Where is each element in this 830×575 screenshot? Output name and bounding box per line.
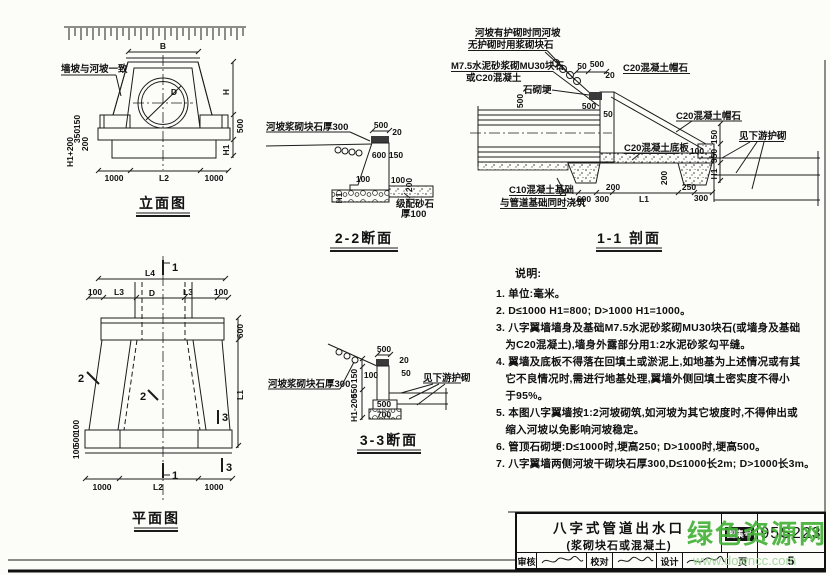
view-title-1-1: 1-1 剖面 bbox=[597, 230, 661, 246]
dim-label: 200 bbox=[659, 171, 669, 185]
dim-label: 600 bbox=[235, 324, 245, 338]
section-1-1-view: 河坡有护砌时同河坡 无护砌时用浆砌块石 M7.5水泥砂浆砌MU30块石 或C20… bbox=[451, 27, 820, 251]
dim-label: 100 bbox=[356, 174, 370, 184]
c20-slab-label: C20混凝土底板 bbox=[624, 142, 689, 154]
dim-label: 500 bbox=[377, 399, 391, 409]
wall-cap bbox=[376, 359, 389, 366]
dim-label: 100 bbox=[88, 287, 102, 297]
view-title-elevation: 立面图 bbox=[139, 195, 187, 211]
mortar-label-line1: M7.5水泥砂浆砌MU30块石 bbox=[451, 60, 564, 72]
note-line: 5. 本图八字翼墙按1:2河坡砌筑,如河坡为其它坡度时,不得伸出或 bbox=[496, 405, 830, 422]
dim-label: 200 bbox=[606, 182, 620, 192]
dim-label: H bbox=[221, 89, 231, 95]
proofreader-signature bbox=[613, 553, 657, 569]
design-label: 设计 bbox=[657, 553, 683, 569]
atlas-number-label: 图集号 bbox=[725, 527, 755, 541]
dim-label: 1000 bbox=[205, 482, 224, 492]
proof-label: 校对 bbox=[587, 553, 613, 569]
bank-note-line2: 无护砌时用浆砌块石 bbox=[467, 39, 554, 51]
view-title-3-3: 3-3断面 bbox=[360, 432, 418, 448]
dim-label: 100 bbox=[214, 287, 228, 297]
signature-scribble bbox=[684, 554, 726, 568]
dim-label: 250 bbox=[682, 182, 696, 192]
notes-heading: 说明: bbox=[515, 266, 830, 283]
review-label: 审核 bbox=[517, 553, 537, 569]
stone-ridge bbox=[589, 92, 602, 100]
dim-label: 300 bbox=[694, 193, 708, 203]
dim-label: L2 bbox=[153, 482, 163, 492]
slope-note-label: 墙坡与河坡一致 bbox=[61, 63, 128, 75]
plan-view: 1 1 L4 100 L3 D L3 100 bbox=[71, 256, 245, 531]
downstream-protection-label: 见下游护砌 bbox=[739, 130, 787, 142]
dim-label: 200 bbox=[80, 137, 90, 151]
dim-label: 100 bbox=[71, 445, 81, 459]
section-marker-3: 3 bbox=[222, 412, 228, 424]
note-line: 缩入河坡以免影响河坡稳定。 bbox=[496, 422, 830, 439]
dim-label: 500 bbox=[582, 101, 596, 111]
signature-scribble bbox=[539, 554, 585, 568]
dim-label: 150 bbox=[349, 369, 359, 383]
note-line: 它不良情况时,需进行地基处理,翼墙外侧回填土密实度不得小 bbox=[496, 371, 830, 388]
note-line: 6. 管顶石砌埂:D≤1000时,埂高250; D>1000时,埂高500。 bbox=[496, 439, 830, 456]
dim-label: 100 bbox=[71, 420, 81, 434]
dim-label: H1 bbox=[221, 144, 231, 155]
slope-masonry-label: 河坡浆砌块石厚300 bbox=[266, 121, 348, 133]
dim-label: 50 bbox=[603, 109, 613, 119]
dim-label: B bbox=[160, 41, 166, 51]
dim-label: 500 bbox=[235, 119, 245, 133]
dim-label: L4 bbox=[145, 268, 155, 278]
dim-label: L2 bbox=[159, 173, 169, 183]
dim-label: H1-200 bbox=[349, 394, 359, 422]
dim-label: 20 bbox=[399, 355, 409, 365]
dim-label: 50 bbox=[577, 61, 587, 71]
dim-label: 300 bbox=[595, 194, 609, 204]
page-label: 页 bbox=[728, 553, 758, 569]
mortar-label-line2: 或C20混凝土 bbox=[466, 72, 522, 84]
dim-label: L1 bbox=[639, 194, 649, 204]
sheet-subtitle: (浆砌块石或混凝土) bbox=[517, 537, 721, 553]
note-line: 3. 八字翼墙墙身及基础M7.5水泥砂浆砌MU30块石(或墙身及基础 bbox=[496, 320, 830, 337]
ground-hatch bbox=[64, 27, 246, 40]
dim-label: 1000 bbox=[205, 173, 224, 183]
section-marker-1: 1 bbox=[172, 262, 178, 274]
dim-label: 500 bbox=[374, 120, 388, 130]
note-line: 2. D≤1000 H1=800; D>1000 H1=1000。 bbox=[496, 303, 830, 320]
sheet-title: 八字式管道出水口 bbox=[517, 517, 721, 537]
dim-label: 500 bbox=[515, 94, 525, 108]
dim-label: 1000 bbox=[93, 482, 112, 492]
c10-footing-label-line2: 与管道基础同时浇筑 bbox=[500, 197, 586, 209]
dim-label: H1+200 bbox=[65, 137, 75, 167]
dim-label: 350 bbox=[709, 149, 719, 163]
note-line: 7. 八字翼墙两侧河坡干砌块石厚300,D≤1000长2m; D>1000长3m… bbox=[496, 456, 830, 473]
dim-label: 100 bbox=[364, 370, 378, 380]
wall-cap bbox=[371, 136, 389, 143]
dim-label: 20 bbox=[605, 70, 615, 80]
dim-label: 100 bbox=[690, 146, 704, 156]
slope-masonry-label: 河坡浆砌块石厚300 bbox=[268, 378, 350, 390]
page-number: 5 bbox=[758, 553, 824, 569]
drawing-sheet: B D H 500 H1 150 350 200 H1+200 1000 L2 … bbox=[0, 0, 830, 575]
atlas-number: 95S223 bbox=[758, 514, 824, 553]
section-marker-1: 1 bbox=[172, 470, 178, 482]
dim-label: 150 bbox=[389, 150, 403, 160]
designer-signature bbox=[683, 553, 728, 569]
view-title-2-2: 2-2断面 bbox=[335, 230, 393, 246]
c20-cap-label-top: C20混凝土帽石 bbox=[623, 62, 688, 74]
dim-label: H1 bbox=[709, 168, 719, 179]
dim-label: 700 bbox=[377, 410, 391, 420]
dim-label: 500 bbox=[590, 59, 604, 69]
section-marker-2: 2 bbox=[140, 391, 146, 403]
c20-cap-label-mid: C20混凝土帽石 bbox=[676, 110, 741, 122]
dim-label: 600 bbox=[577, 194, 591, 204]
reviewer-signature bbox=[537, 553, 587, 569]
dim-label: L1 bbox=[235, 390, 245, 400]
dim-label: 20 bbox=[392, 127, 402, 137]
note-line: 4. 翼墙及底板不得落在回填土或淤泥上,如地基为上述情况或有其 bbox=[496, 354, 830, 371]
pipe-diameter-label: D bbox=[171, 87, 177, 97]
dim-label: 50 bbox=[401, 368, 411, 378]
downstream-protection-label: 见下游护砌 bbox=[423, 372, 471, 384]
view-title-plan: 平面图 bbox=[132, 510, 180, 526]
section-marker-3: 3 bbox=[226, 462, 232, 474]
note-line: 于95%。 bbox=[496, 388, 830, 405]
section-2-2-view: 河坡浆砌块石厚300 500 20 600 150 100 100 200 H1… bbox=[266, 120, 435, 251]
note-line: 1. 单位:毫米。 bbox=[496, 286, 830, 303]
dim-label: 1000 bbox=[105, 173, 124, 183]
bank-note-line1: 河坡有护砌时同河坡 bbox=[475, 27, 561, 39]
gravel-thickness-label: 厚100 bbox=[401, 209, 426, 220]
section-marker-2: 2 bbox=[78, 373, 84, 385]
notes-panel: 说明: 1. 单位:毫米。 2. D≤1000 H1=800; D>1000 H… bbox=[496, 266, 830, 473]
dim-label: 150 bbox=[709, 130, 719, 144]
section-3-3-view: 河坡浆砌块石厚300 500 20 100 50 150 550 H1-200 … bbox=[268, 344, 471, 453]
dim-label: 600 bbox=[372, 150, 386, 160]
dim-label: D bbox=[149, 288, 155, 298]
stone-ridge-label: 石砌埂 bbox=[522, 84, 552, 96]
dim-label: 150 bbox=[72, 115, 82, 129]
note-line: 为C20混凝土),墙身外露部分用1:2水泥砂浆勾平缝。 bbox=[496, 337, 830, 354]
title-block: 八字式管道出水口 (浆砌块石或混凝土) 图集号 95S223 审核 校对 设计 … bbox=[515, 512, 826, 570]
signature-scribble bbox=[615, 554, 655, 568]
dim-label: L3 bbox=[114, 287, 124, 297]
elevation-view: B D H 500 H1 150 350 200 H1+200 1000 L2 … bbox=[61, 27, 246, 216]
dim-label: 500 bbox=[377, 344, 391, 354]
